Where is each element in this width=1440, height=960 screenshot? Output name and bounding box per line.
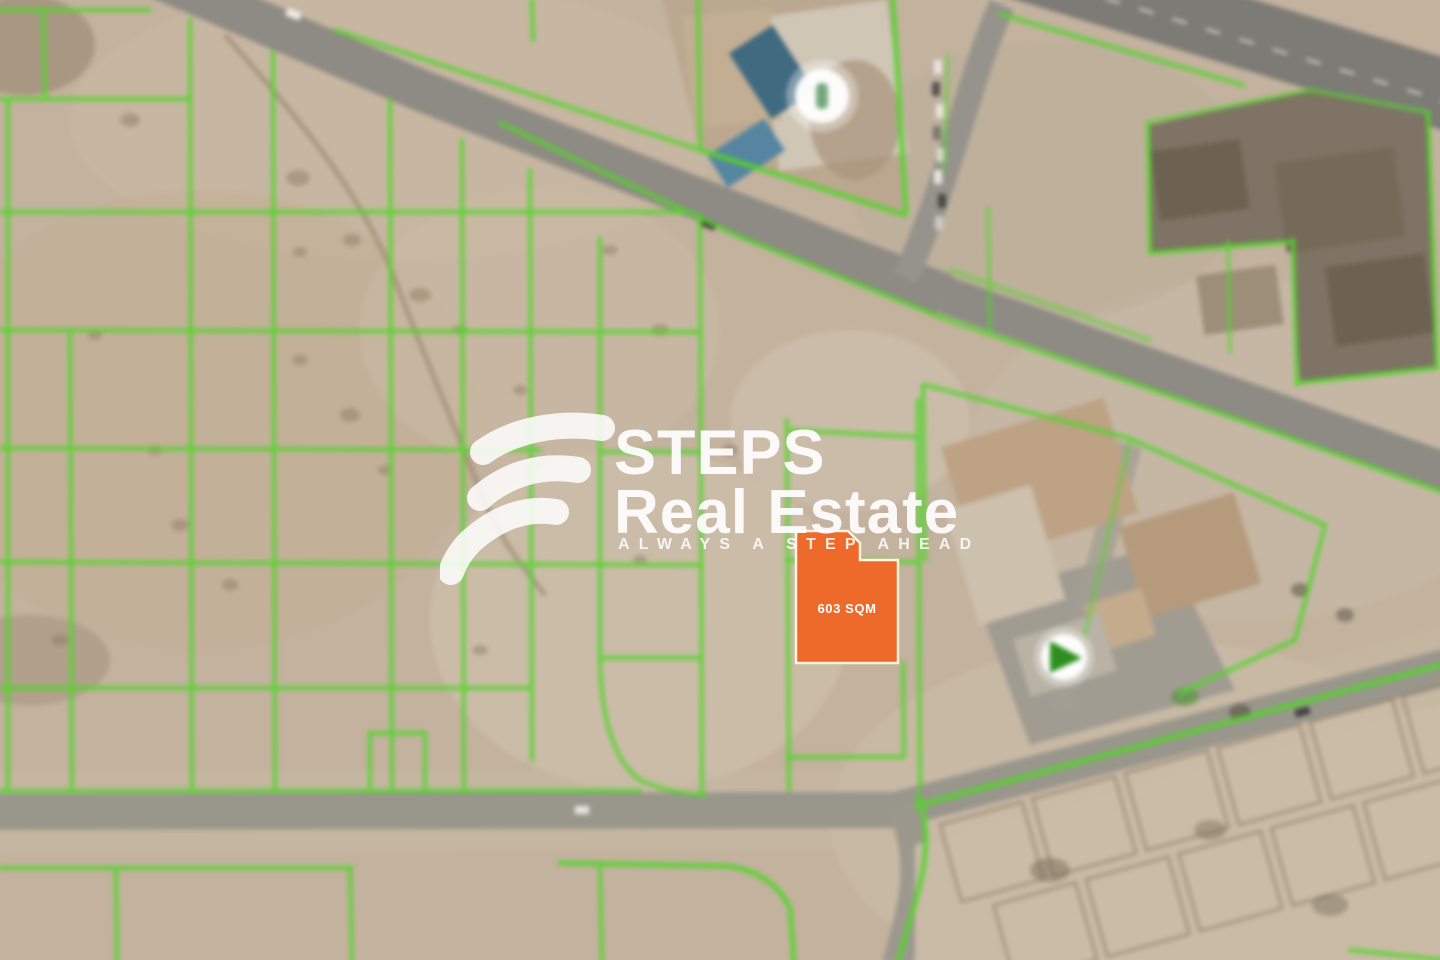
highlighted-plot-layer (0, 0, 1440, 960)
plot-area-label: 603 SQM (796, 560, 898, 656)
listing-map-image: 603 SQM STEPS Real Estate ALWAYS A STEP … (0, 0, 1440, 960)
